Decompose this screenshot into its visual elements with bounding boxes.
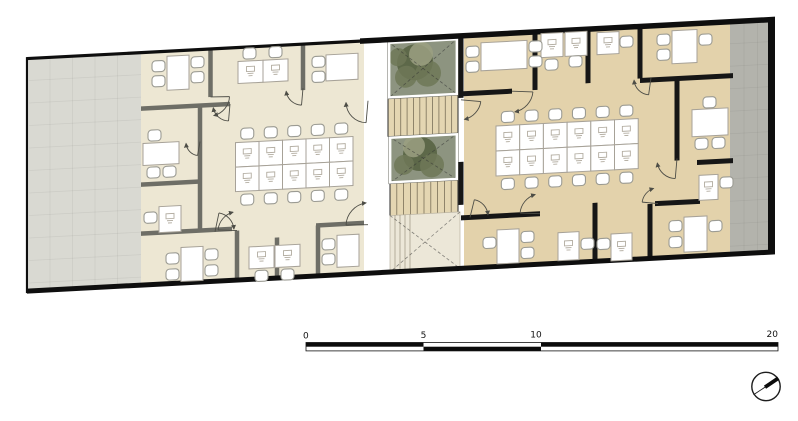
chair: [241, 128, 254, 140]
chair: [529, 56, 542, 68]
chair: [269, 46, 282, 58]
desk-top: [567, 146, 591, 172]
chair: [335, 189, 348, 201]
desk: [275, 244, 300, 267]
chair: [483, 237, 496, 249]
desk-top: [259, 165, 283, 191]
chair: [205, 249, 218, 261]
chair: [525, 110, 538, 122]
chair: [620, 172, 633, 184]
chair: [596, 173, 609, 185]
wall: [461, 91, 512, 94]
desk: [306, 162, 330, 188]
desk: [481, 40, 527, 70]
desk: [143, 142, 179, 166]
chair: [335, 123, 348, 135]
chair: [264, 126, 277, 138]
chair: [597, 238, 610, 250]
chair: [657, 49, 670, 61]
wall: [697, 161, 733, 163]
desk: [283, 163, 307, 189]
chair: [322, 253, 335, 265]
chair: [709, 220, 722, 232]
chair: [521, 231, 534, 243]
chair: [501, 111, 514, 123]
floor-plan-drawing: 0 5 10 20: [0, 0, 798, 421]
desk-top: [520, 149, 544, 175]
desk-top: [692, 108, 728, 137]
chair: [191, 56, 204, 68]
desk: [167, 55, 189, 90]
desk-top: [275, 244, 300, 267]
chair: [545, 59, 558, 71]
desk: [330, 161, 354, 187]
desk-top: [283, 139, 307, 165]
desk-top: [558, 232, 579, 261]
desk-top: [236, 166, 260, 192]
chair: [695, 138, 708, 150]
chair: [241, 194, 254, 206]
chair: [322, 238, 335, 250]
desk: [611, 233, 632, 261]
desk-top: [611, 233, 632, 261]
desk-top: [615, 119, 639, 145]
chair: [581, 238, 594, 250]
desk: [238, 60, 263, 83]
desk-top: [591, 145, 615, 171]
chair: [152, 75, 165, 87]
desk: [543, 147, 567, 173]
desk-top: [543, 122, 567, 148]
scale-bar: 0 5 10 20: [303, 330, 778, 351]
chair: [569, 55, 582, 67]
desk: [672, 29, 697, 63]
desk-top: [306, 162, 330, 188]
desk: [520, 149, 544, 175]
desk: [567, 121, 591, 147]
desk-top: [181, 246, 203, 281]
chair: [148, 130, 161, 142]
chair: [720, 177, 733, 189]
chair: [549, 176, 562, 188]
scale-label-5: 5: [421, 331, 427, 341]
scale-segment: [424, 347, 542, 351]
wall: [141, 182, 200, 185]
desk: [497, 229, 519, 264]
desk: [520, 124, 544, 150]
desk: [330, 137, 354, 163]
desk-top: [249, 246, 274, 269]
chair: [166, 253, 179, 265]
chair: [288, 191, 301, 203]
desk: [496, 125, 520, 151]
desk: [565, 31, 587, 56]
desk: [699, 174, 718, 200]
desk: [181, 246, 203, 281]
desk-top: [615, 144, 639, 170]
desk: [283, 139, 307, 165]
desk: [326, 53, 358, 81]
chair: [191, 71, 204, 83]
chair: [699, 34, 712, 46]
chair: [281, 269, 294, 281]
desk-top: [306, 138, 330, 164]
desk: [558, 232, 579, 261]
chair: [144, 212, 157, 224]
compass: [752, 372, 780, 400]
desk: [567, 146, 591, 172]
desk: [306, 138, 330, 164]
desk: [591, 120, 615, 146]
desk: [543, 122, 567, 148]
chair: [657, 34, 670, 46]
scale-label-10: 10: [530, 331, 542, 341]
desk-top: [597, 32, 619, 55]
desk-top: [263, 59, 288, 82]
right-exterior-paving: [730, 20, 771, 255]
chair: [703, 96, 716, 108]
desk: [263, 59, 288, 82]
desk-top: [497, 229, 519, 264]
desk-top: [143, 142, 179, 166]
chair: [255, 270, 268, 282]
desk-top: [330, 161, 354, 187]
chair: [529, 41, 542, 53]
courtyard-2: [389, 133, 458, 184]
chair: [521, 247, 534, 259]
chair: [549, 109, 562, 121]
desk: [236, 141, 260, 167]
chair: [152, 60, 165, 72]
desk-top: [672, 29, 697, 63]
desk-top: [541, 32, 563, 57]
chair: [669, 220, 682, 232]
chair: [620, 36, 633, 48]
chair: [312, 71, 325, 83]
desk: [615, 119, 639, 145]
courtyard-1: [388, 38, 458, 99]
chair: [620, 105, 633, 117]
stair-slab: [388, 95, 458, 137]
desk-top: [567, 121, 591, 147]
chair: [166, 269, 179, 281]
chair: [525, 177, 538, 189]
desk: [259, 165, 283, 191]
desk-top: [565, 31, 587, 56]
desk-top: [591, 120, 615, 146]
desk-top: [543, 147, 567, 173]
desk: [692, 108, 728, 137]
desk: [684, 216, 707, 252]
chair: [572, 174, 585, 186]
chair: [596, 106, 609, 118]
chair: [572, 107, 585, 119]
desk-top: [330, 137, 354, 163]
chair: [466, 61, 479, 73]
desk-top: [326, 53, 358, 81]
desk-top: [684, 216, 707, 252]
chair: [205, 265, 218, 277]
desk: [159, 206, 181, 233]
desk: [496, 150, 520, 176]
desk-top: [496, 125, 520, 151]
desk: [541, 32, 563, 57]
desk-top: [167, 55, 189, 90]
stair-flight-2: [390, 180, 458, 216]
desk-top: [337, 234, 359, 267]
desk: [249, 246, 274, 269]
ramp: [390, 212, 460, 272]
chair: [311, 124, 324, 136]
desk-top: [259, 140, 283, 166]
desk-top: [283, 163, 307, 189]
chair: [147, 167, 160, 179]
chair: [669, 236, 682, 248]
desk-top: [238, 60, 263, 83]
chair: [243, 48, 256, 60]
desk-top: [481, 40, 527, 70]
stair-flight-1: [388, 95, 458, 137]
desk: [337, 234, 359, 267]
chair: [466, 46, 479, 58]
desk: [591, 145, 615, 171]
desk: [236, 166, 260, 192]
chair: [501, 178, 514, 190]
scale-segment: [306, 343, 424, 347]
chair: [712, 137, 725, 149]
scale-label-20: 20: [767, 330, 779, 340]
wall: [655, 201, 700, 203]
chair: [311, 190, 324, 202]
desk-top: [159, 206, 181, 233]
desk: [597, 32, 619, 55]
scale-segment: [541, 343, 778, 347]
desk-top: [236, 141, 260, 167]
desk-top: [496, 150, 520, 176]
chair: [288, 125, 301, 137]
chair: [264, 192, 277, 204]
floor-plan-page: 0 5 10 20: [0, 0, 798, 421]
desk: [615, 144, 639, 170]
desk-top: [699, 174, 718, 200]
desk-top: [520, 124, 544, 150]
chair: [163, 166, 176, 178]
desk: [259, 140, 283, 166]
chair: [312, 56, 325, 68]
scale-label-0: 0: [303, 332, 309, 342]
building-plan: [27, 18, 775, 294]
